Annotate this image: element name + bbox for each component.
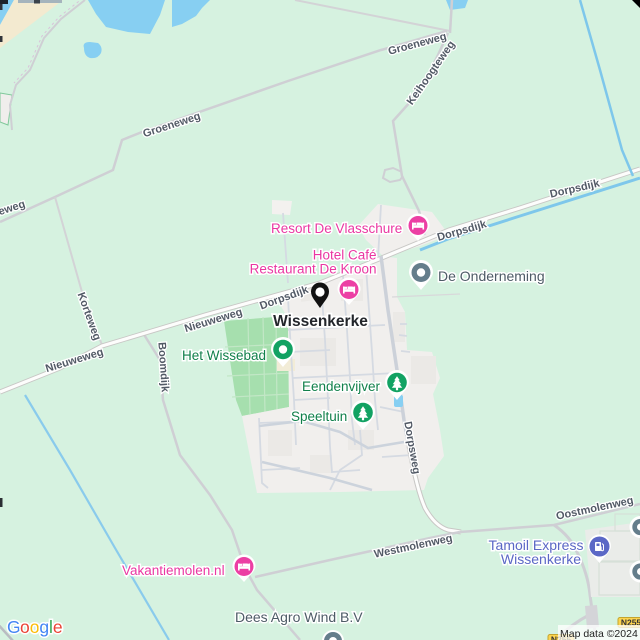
svg-text:Resort De Vlasschure: Resort De Vlasschure — [271, 221, 402, 236]
svg-text:Eendenvijver: Eendenvijver — [302, 379, 381, 394]
svg-text:De Onderneming: De Onderneming — [438, 268, 545, 284]
svg-text:Wissenkerke: Wissenkerke — [501, 551, 581, 567]
svg-text:Vakantiemolen.nl: Vakantiemolen.nl — [122, 563, 225, 578]
svg-text:e: e — [53, 617, 63, 637]
svg-text:o: o — [30, 617, 40, 637]
svg-text:Het Wissebad: Het Wissebad — [182, 348, 266, 363]
svg-text:Speeltuin: Speeltuin — [291, 409, 347, 424]
svg-text:G: G — [7, 617, 21, 637]
svg-text:Dees Agro Wind B.V: Dees Agro Wind B.V — [235, 609, 363, 625]
svg-text:Wissenkerke: Wissenkerke — [273, 313, 368, 330]
svg-text:Hotel Café: Hotel Café — [313, 248, 377, 263]
svg-text:o: o — [20, 617, 30, 637]
svg-text:Restaurant De Kroon: Restaurant De Kroon — [250, 262, 377, 277]
svg-text:Map data ©2024: Map data ©2024 — [560, 628, 638, 640]
svg-text:g: g — [39, 617, 49, 637]
